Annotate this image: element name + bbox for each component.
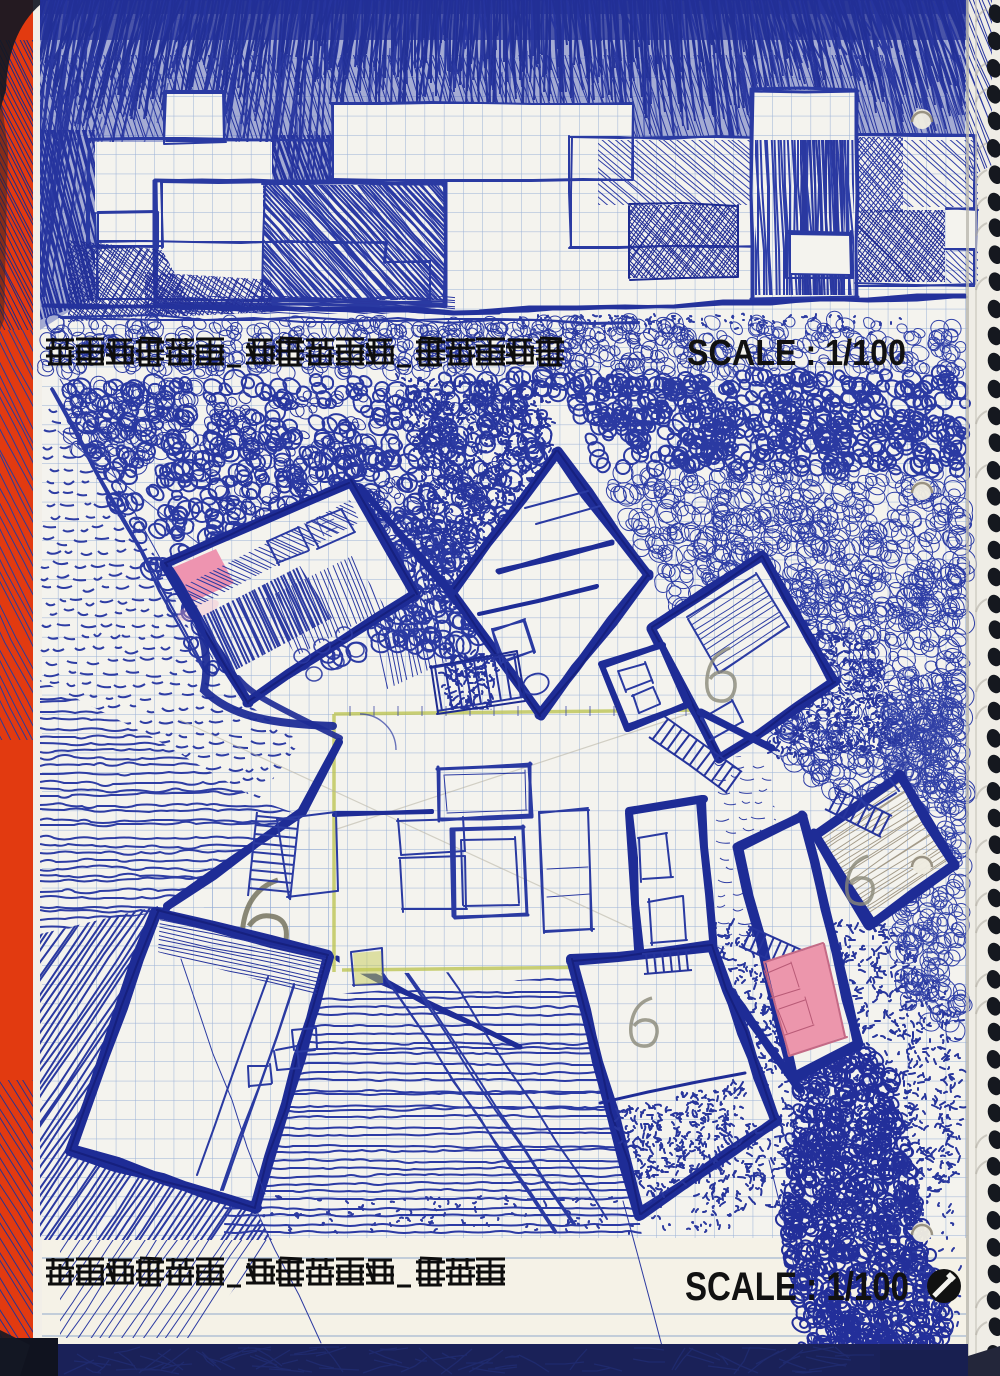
svg-text:SCALE : 1/100: SCALE : 1/100	[687, 332, 906, 373]
svg-text:SCALE : 1/100: SCALE : 1/100	[685, 1265, 909, 1309]
